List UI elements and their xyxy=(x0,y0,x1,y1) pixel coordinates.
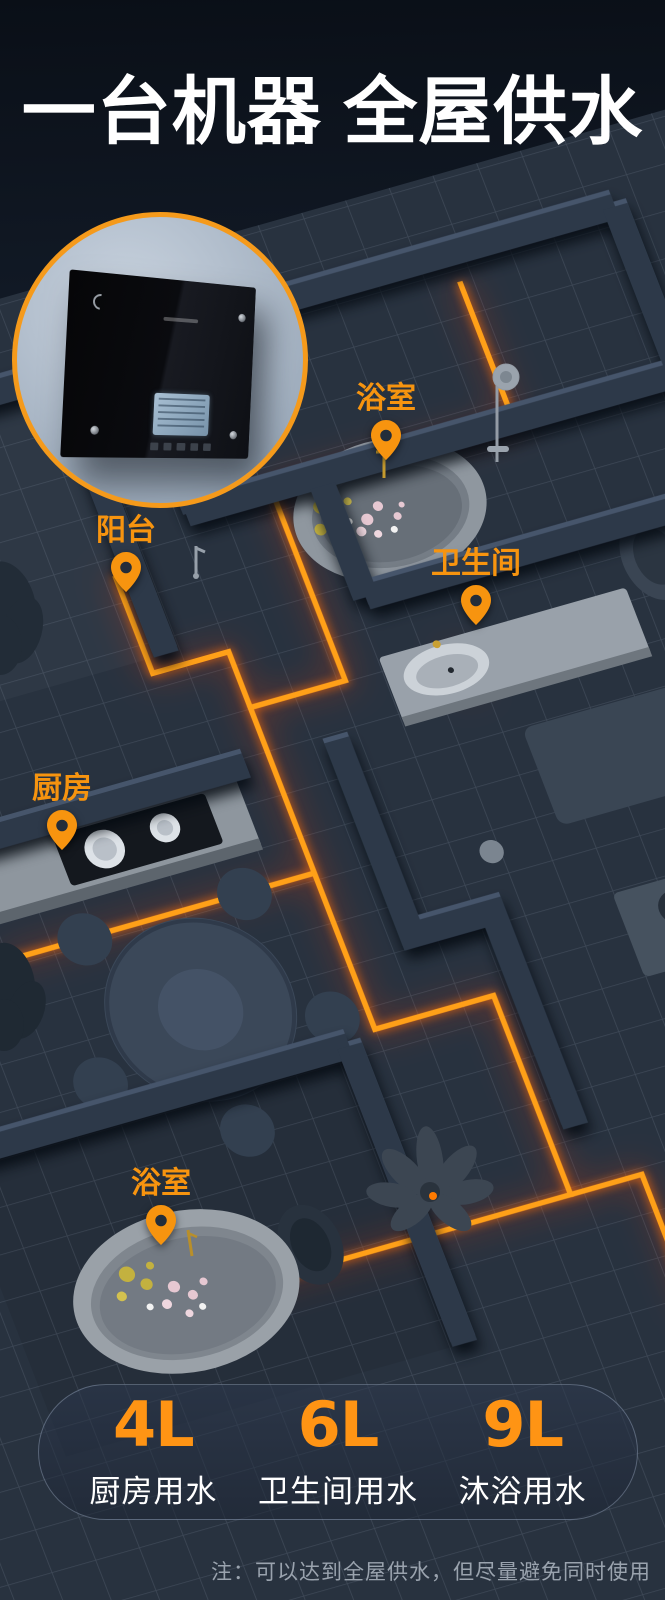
pin-bathroom-top: 浴室 xyxy=(356,384,416,460)
pin-label: 厨房 xyxy=(32,774,92,804)
control-display xyxy=(153,393,210,436)
stat-toilet: 6L 卫生间用水 xyxy=(258,1394,418,1511)
poster: 一台机器 全屋供水 浴室 阳台 卫生间 xyxy=(0,0,665,1600)
location-pin-icon xyxy=(371,420,401,460)
stat-value: 9L xyxy=(482,1394,563,1456)
pin-kitchen: 厨房 xyxy=(32,774,92,850)
location-pin-icon xyxy=(111,552,141,592)
pin-label: 卫生间 xyxy=(431,549,521,579)
product-spotlight xyxy=(12,212,308,508)
screw-icon xyxy=(229,431,237,439)
water-heater-panel xyxy=(60,269,256,458)
stat-label: 沐浴用水 xyxy=(459,1466,587,1511)
screw-icon xyxy=(238,314,246,323)
stat-kitchen: 4L 厨房用水 xyxy=(89,1394,217,1511)
location-pin-icon xyxy=(146,1205,176,1245)
stat-label: 卫生间用水 xyxy=(258,1466,418,1511)
brand-mark xyxy=(163,317,198,323)
stat-value: 4L xyxy=(113,1394,194,1456)
location-pin-icon xyxy=(47,810,77,850)
pin-label: 浴室 xyxy=(131,1169,191,1199)
location-pin-icon xyxy=(461,585,491,625)
pin-balcony: 阳台 xyxy=(96,516,156,592)
page-title: 一台机器 全屋供水 xyxy=(0,52,665,159)
pin-label: 阳台 xyxy=(96,516,156,546)
screw-icon xyxy=(90,426,99,435)
stat-shower: 9L 沐浴用水 xyxy=(459,1394,587,1511)
stat-value: 6L xyxy=(298,1394,379,1456)
touch-buttons xyxy=(150,443,211,451)
pin-toilet-room: 卫生间 xyxy=(431,549,521,625)
stat-label: 厨房用水 xyxy=(89,1466,217,1511)
footnote: 注：可以达到全屋供水，但尽量避免同时使用 xyxy=(211,1556,651,1586)
pin-label: 浴室 xyxy=(356,384,416,414)
stats-panel: 4L 厨房用水 6L 卫生间用水 9L 沐浴用水 xyxy=(38,1384,638,1520)
pin-bathroom-bottom: 浴室 xyxy=(131,1169,191,1245)
crescent-logo-icon xyxy=(90,291,111,313)
